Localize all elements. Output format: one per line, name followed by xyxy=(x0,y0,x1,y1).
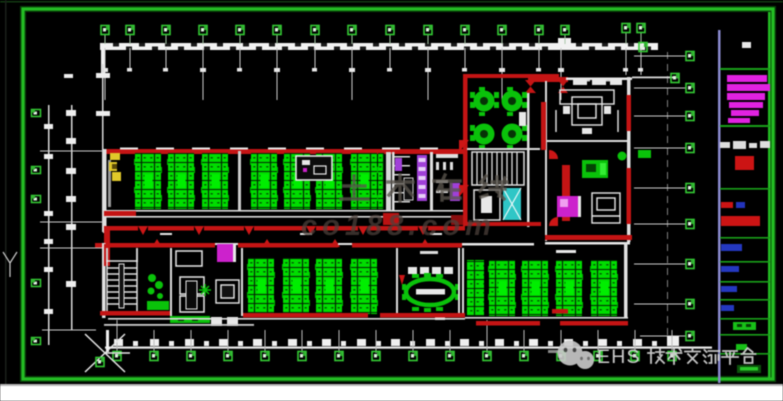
svg-text:EHS: EHS xyxy=(597,346,641,368)
svg-text:co188.com: co188.com xyxy=(301,210,496,242)
